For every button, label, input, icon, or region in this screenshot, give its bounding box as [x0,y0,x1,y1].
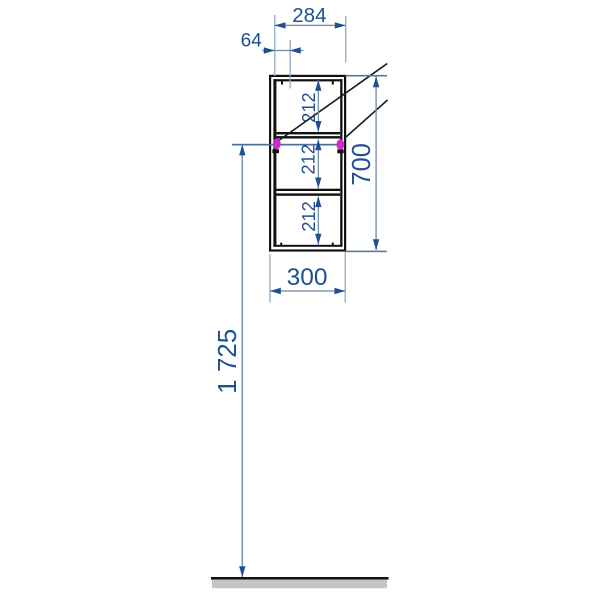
svg-text:300: 300 [287,264,328,291]
svg-text:284: 284 [292,4,326,27]
svg-text:700: 700 [348,143,376,186]
svg-text:1 725: 1 725 [212,329,242,394]
svg-text:64: 64 [241,30,263,51]
svg-text:212: 212 [299,92,319,122]
svg-text:212: 212 [298,144,318,174]
svg-text:212: 212 [299,201,319,231]
